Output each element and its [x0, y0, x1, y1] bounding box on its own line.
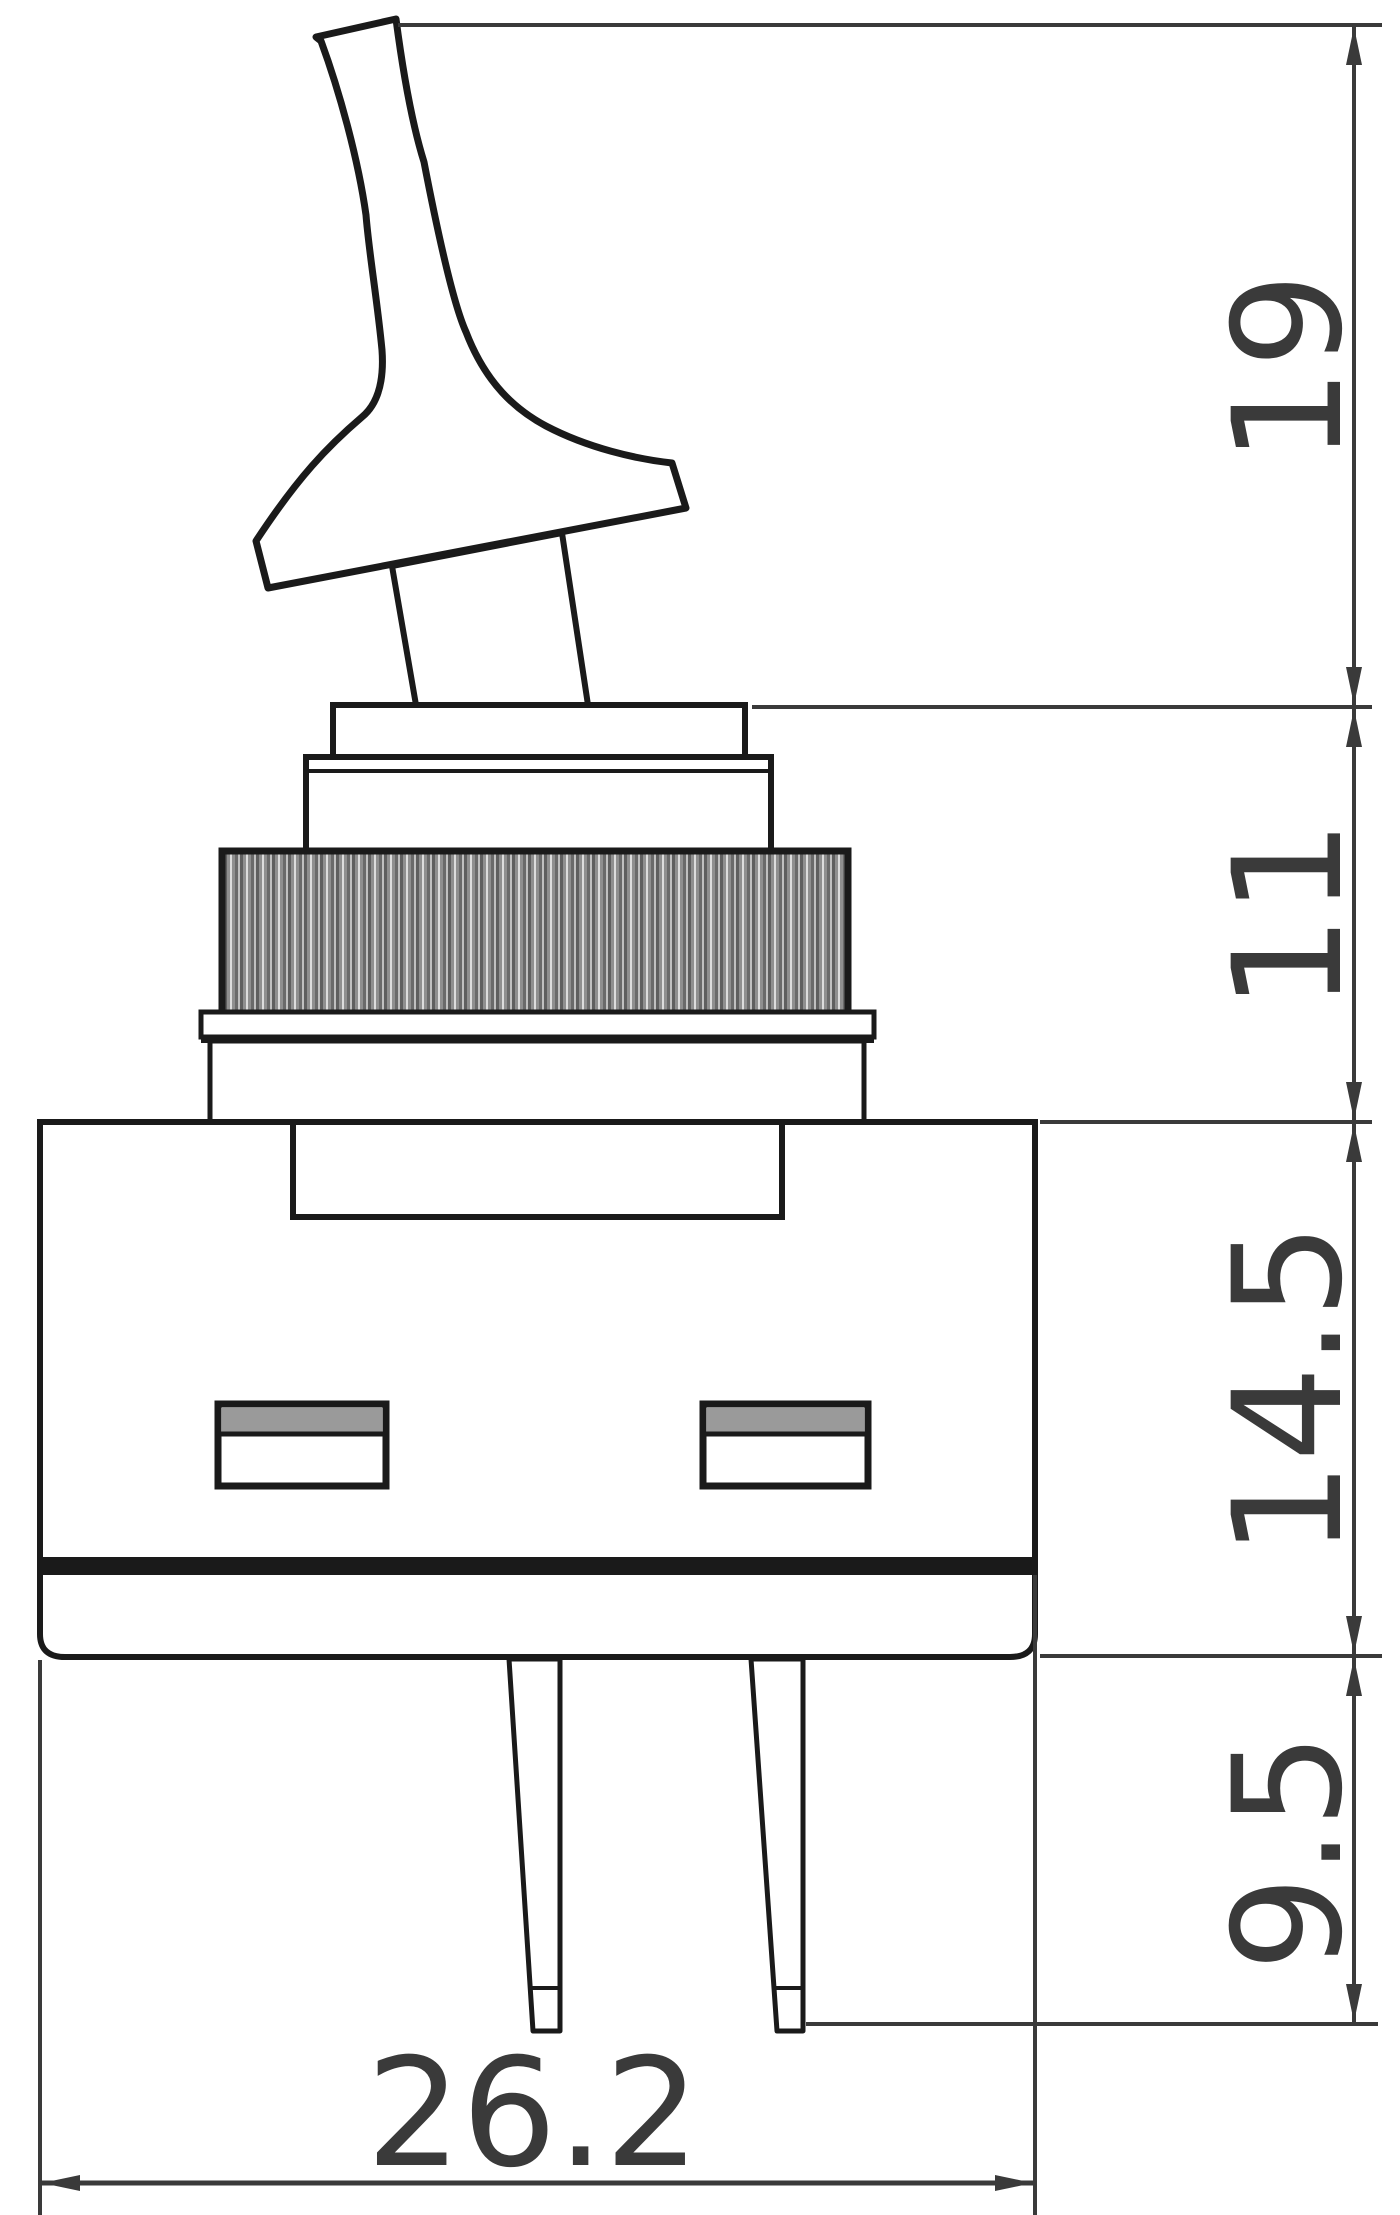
dim-label-pin-length: 9.5: [1202, 1733, 1376, 1972]
dim-label-body-width: 26.2: [366, 2027, 700, 2201]
arrow-down-icon: [1346, 1984, 1362, 2022]
arrow-down-icon: [1346, 1616, 1362, 1654]
terminal-pin-left: [509, 1659, 560, 2031]
knurled-nut: [222, 851, 848, 1013]
arrow-up-icon: [1346, 1124, 1362, 1162]
arrow-up-icon: [1346, 709, 1362, 747]
drawing-canvas: 19 11 14.5 9.5 26.2: [0, 0, 1400, 2215]
dim-label-body-height: 14.5: [1202, 1223, 1376, 1557]
actuator-cap: [333, 705, 745, 757]
terminal-slot-right: [703, 1404, 868, 1486]
terminal-slot-left: [218, 1404, 386, 1486]
dim-label-bushing-height: 11: [1202, 820, 1376, 1011]
dim-label-lever-height: 19: [1202, 273, 1376, 464]
arrow-up-icon: [1346, 27, 1362, 65]
arrow-right-icon: [995, 2175, 1033, 2191]
body-base: [40, 1572, 1035, 1657]
bushing-neck: [210, 1041, 864, 1124]
technical-drawing-svg: 19 11 14.5 9.5 26.2: [0, 0, 1400, 2215]
arrow-down-icon: [1346, 1082, 1362, 1120]
arrow-down-icon: [1346, 667, 1362, 705]
mounting-flange: [201, 1012, 874, 1037]
toggle-lever: [256, 19, 686, 588]
switch-body: [40, 1122, 1035, 1560]
terminal-pin-right: [751, 1659, 803, 2031]
arrow-up-icon: [1346, 1658, 1362, 1696]
arrow-left-icon: [42, 2175, 80, 2191]
